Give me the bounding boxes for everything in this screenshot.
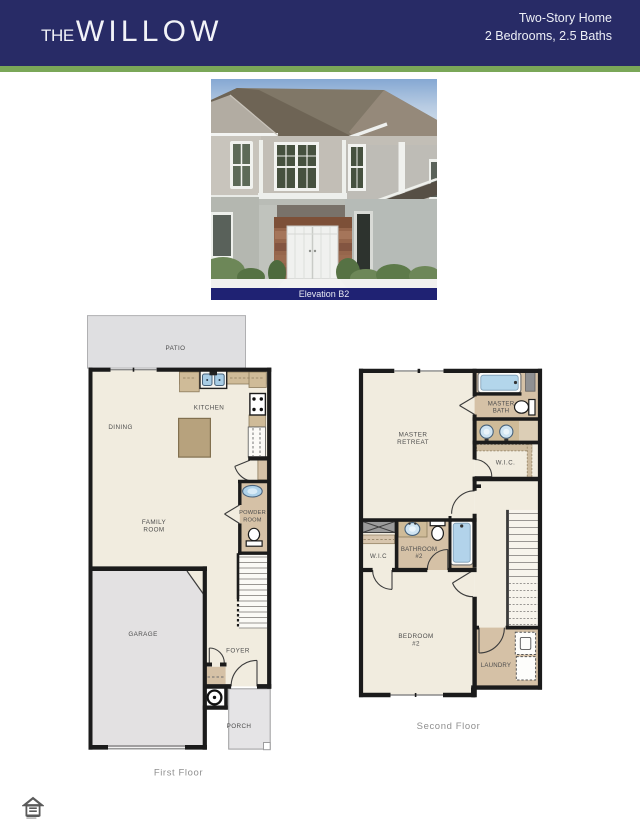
- svg-text:BATH: BATH: [493, 408, 510, 415]
- svg-text:First Floor: First Floor: [154, 768, 203, 779]
- svg-text:ROOM: ROOM: [143, 527, 164, 534]
- svg-text:FAMILY: FAMILY: [142, 519, 167, 526]
- svg-text:FOYER: FOYER: [226, 648, 250, 655]
- svg-text:MASTER: MASTER: [488, 401, 515, 408]
- svg-text:ROOM: ROOM: [243, 518, 262, 524]
- svg-text:GARAGE: GARAGE: [128, 631, 157, 638]
- svg-text:Second Floor: Second Floor: [417, 721, 481, 732]
- svg-text:W.I.C.: W.I.C.: [496, 460, 516, 467]
- svg-text:DINING: DINING: [108, 424, 132, 431]
- svg-text:BATHROOM: BATHROOM: [401, 546, 437, 553]
- svg-text:W.I.C: W.I.C: [370, 553, 387, 560]
- svg-text:BEDROOM: BEDROOM: [398, 633, 433, 640]
- svg-text:PORCH: PORCH: [227, 723, 252, 730]
- svg-text:#2: #2: [415, 553, 423, 560]
- svg-text:#2: #2: [412, 641, 420, 648]
- svg-text:RETREAT: RETREAT: [397, 439, 429, 446]
- svg-text:KITCHEN: KITCHEN: [194, 405, 224, 412]
- svg-text:MASTER: MASTER: [399, 432, 428, 439]
- svg-text:PATIO: PATIO: [166, 345, 186, 352]
- svg-text:LAUNDRY: LAUNDRY: [481, 662, 511, 669]
- svg-text:POWDER: POWDER: [239, 510, 266, 516]
